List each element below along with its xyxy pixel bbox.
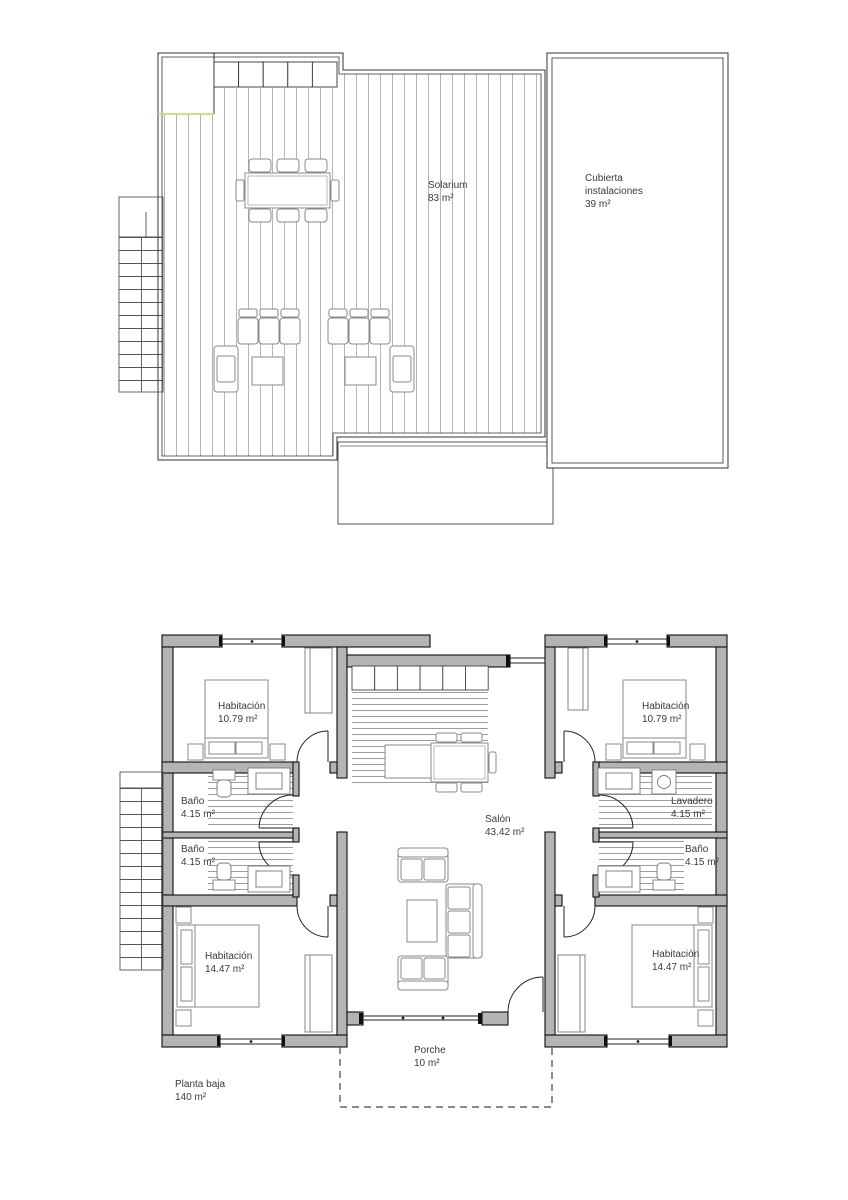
upper-stair-icon <box>119 197 163 392</box>
kitchen-cabinets <box>352 666 488 690</box>
bedroom-bottom-right-label: Habitación14.47 m² <box>652 948 699 974</box>
bedroom-top-left-label: Habitación10.79 m² <box>218 700 265 726</box>
bath-left-1-label: Baño4.15 m² <box>181 795 215 821</box>
solarium-outline <box>158 53 545 460</box>
kitchen-table-symbol <box>385 733 496 792</box>
lounge-sofa-symbol-left <box>214 309 300 392</box>
sofa-symbols <box>398 848 482 990</box>
living-room-label: Salón43.42 m² <box>485 813 524 839</box>
bedroom-bottom-left-label: Habitación14.47 m² <box>205 950 252 976</box>
lounge-sofa-symbol-right <box>328 309 414 392</box>
ground-stair-icon <box>120 772 163 970</box>
ground-floor-title: Planta baja140 m² <box>175 1078 225 1104</box>
coffee-table-symbol <box>407 900 437 942</box>
laundry-label: Lavadero4.15 m² <box>671 795 713 821</box>
pergola-panels <box>214 62 337 87</box>
ground-floor-plan <box>120 635 727 1107</box>
cubierta-label: Cubiertainstalaciones39 m² <box>585 172 643 211</box>
porch-label: Porche10 m² <box>414 1044 446 1070</box>
bath-left-2-label: Baño4.15 m² <box>181 843 215 869</box>
porch-dashed-outline <box>340 1047 552 1107</box>
solarium-label: Solarium83 m² <box>428 179 467 205</box>
bedroom-top-right-label: Habitación10.79 m² <box>642 700 689 726</box>
plan-linework <box>0 0 848 1200</box>
upper-floor-plan <box>119 53 728 524</box>
cubierta-outline <box>547 53 728 468</box>
dining-table-symbol <box>236 159 339 222</box>
porch-roof-outline <box>338 442 553 524</box>
floor-plan-sheet: Solarium83 m² Cubiertainstalaciones39 m²… <box>0 0 848 1200</box>
bath-right-label: Baño4.15 m² <box>685 843 719 869</box>
